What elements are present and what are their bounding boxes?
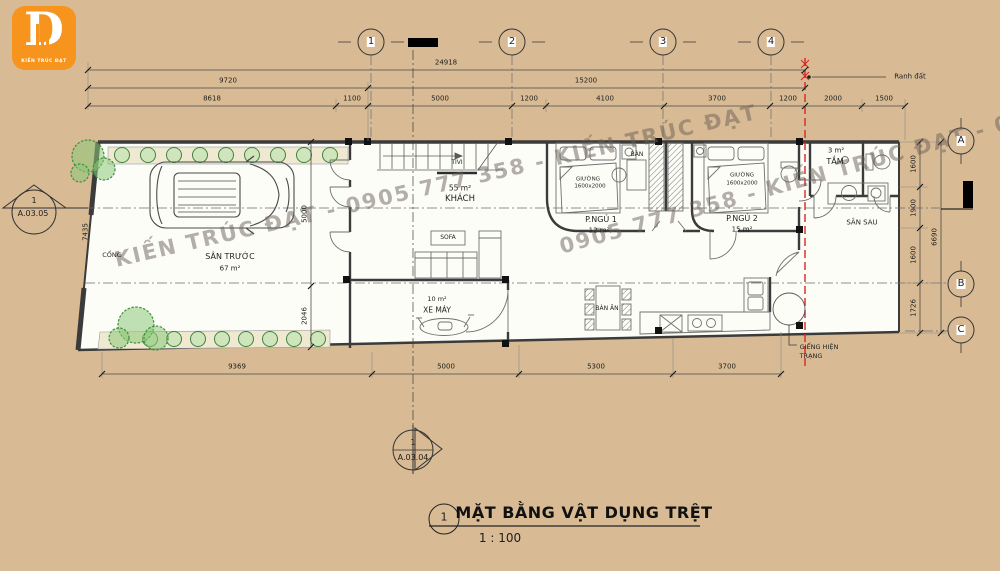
dim: 1200 xyxy=(520,96,538,103)
bed-size-label: 1600x2000 xyxy=(574,184,605,190)
logo-tower-icon xyxy=(36,24,39,46)
dim: 1600 xyxy=(911,155,918,173)
dim: 1900 xyxy=(911,199,918,217)
dim: 3700 xyxy=(708,96,726,103)
room-area-bedroom1: 12 m² xyxy=(589,228,610,235)
room-label-front-yard: SÂN TRƯỚC xyxy=(205,253,254,261)
dim: 1100 xyxy=(343,96,361,103)
room-label-bath: TẮM xyxy=(826,158,843,166)
room-area-bath: 3 m² xyxy=(828,148,844,155)
room-label-bedroom2: P.NGỦ 2 xyxy=(726,215,758,223)
grid-bubble-3: 3 xyxy=(659,37,667,47)
grid-bubble-B: B xyxy=(957,279,966,289)
bed-label: GIƯỜNG xyxy=(576,177,600,183)
dim-total: 24918 xyxy=(435,60,457,67)
room-label-back-yard: SÂN SAU xyxy=(846,220,877,227)
dim: 2046 xyxy=(302,307,309,325)
dim: 1600 xyxy=(911,246,918,264)
grid-bubble-4: 4 xyxy=(767,37,775,47)
sofa-label: SOFA xyxy=(440,235,456,241)
title-number: 1 xyxy=(441,512,448,523)
room-label-gate: CỔNG xyxy=(102,252,122,259)
dim: 9720 xyxy=(219,78,237,85)
dim: 3700 xyxy=(718,364,736,371)
tv-label: TIVI xyxy=(451,160,462,166)
desk-label: BÀN xyxy=(631,152,644,158)
grid-bubble-A: A xyxy=(957,136,966,146)
dim-total-right: 6690 xyxy=(932,228,939,246)
dim: 5000 xyxy=(431,96,449,103)
section-marker-code: A.03.04 xyxy=(398,454,429,462)
company-logo: D KIẾN TRÚC ĐẠT xyxy=(12,6,76,70)
logo-tower-icon xyxy=(41,18,44,46)
dim: 1200 xyxy=(779,96,797,103)
section-marker-number: 1 xyxy=(31,197,36,205)
well-label-line1: GIẾNG HIỆN xyxy=(800,344,839,351)
floor-plan-drawing xyxy=(0,0,1000,571)
boundary-label: Ranh đất xyxy=(894,74,926,81)
logo-letter: D xyxy=(12,2,76,56)
room-area-motorbike: 10 m² xyxy=(427,296,446,303)
room-label-motorbike: XE MÁY xyxy=(423,306,451,314)
section-marker-code: A.03.05 xyxy=(18,210,49,218)
dim: 8618 xyxy=(203,96,221,103)
dim: 1500 xyxy=(875,96,893,103)
dim: 15200 xyxy=(575,78,597,85)
drawing-scale: 1 : 100 xyxy=(479,532,521,544)
bed-size-label: 1600x2000 xyxy=(726,181,757,187)
section-marker-number: 1 xyxy=(410,439,415,447)
dim: 2000 xyxy=(824,96,842,103)
bed-label: GIƯỜNG xyxy=(730,173,754,179)
dim: 1726 xyxy=(911,299,918,317)
dim: 5300 xyxy=(587,364,605,371)
dining-label: BÀN ĂN xyxy=(595,306,618,312)
logo-tower-icon xyxy=(46,26,49,46)
room-area-living: 55 m² xyxy=(449,184,471,192)
dim: 5000 xyxy=(437,364,455,371)
room-area-bedroom2: 15 m² xyxy=(732,227,753,234)
floor-plan-sheet: D KIẾN TRÚC ĐẠT KIẾN TRÚC ĐẠT - 0905 777… xyxy=(0,0,1000,571)
drawing-title: MẶT BẰNG VẬT DỤNG TRỆT xyxy=(455,505,712,521)
room-area-front-yard: 67 m² xyxy=(220,266,241,273)
dim: 5000 xyxy=(302,205,309,223)
dim: 7435 xyxy=(83,223,90,241)
grid-bubble-2: 2 xyxy=(508,37,516,47)
room-label-living: KHÁCH xyxy=(445,195,475,204)
dim: 4100 xyxy=(596,96,614,103)
room-label-bedroom1: P.NGỦ 1 xyxy=(585,216,617,224)
grid-bubble-C: C xyxy=(957,325,966,335)
dim: 9369 xyxy=(228,364,246,371)
grid-bubble-1: 1 xyxy=(367,37,375,47)
well-label-line2: TRẠNG xyxy=(800,353,823,360)
logo-subtitle: KIẾN TRÚC ĐẠT xyxy=(12,59,76,64)
